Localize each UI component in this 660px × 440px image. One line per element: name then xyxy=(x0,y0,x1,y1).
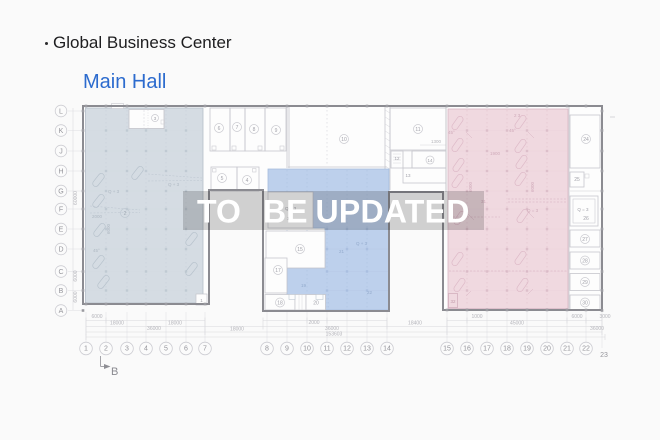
svg-text:TO: TO xyxy=(197,194,241,230)
svg-text:27: 27 xyxy=(582,237,588,243)
svg-text:6000: 6000 xyxy=(106,223,111,234)
svg-text:19: 19 xyxy=(301,283,307,288)
svg-text:2000: 2000 xyxy=(92,214,103,219)
svg-text:Q = 3: Q = 3 xyxy=(527,208,539,213)
svg-text:45°: 45° xyxy=(93,248,100,253)
svg-text:36000: 36000 xyxy=(590,326,604,332)
svg-text:5: 5 xyxy=(164,346,168,353)
svg-text:17: 17 xyxy=(483,346,491,353)
svg-text:2 3: 2 3 xyxy=(514,113,521,118)
svg-text:B: B xyxy=(59,288,64,295)
svg-text:Q = 3: Q = 3 xyxy=(577,207,589,212)
svg-text:Q + 3: Q + 3 xyxy=(168,182,180,187)
svg-text:45000: 45000 xyxy=(510,321,524,327)
svg-text:8: 8 xyxy=(253,127,256,133)
svg-text:28: 28 xyxy=(582,259,588,265)
svg-text:19: 19 xyxy=(523,346,531,353)
svg-text:Q + 3: Q + 3 xyxy=(356,241,368,246)
svg-text:11: 11 xyxy=(415,127,420,133)
svg-text:20: 20 xyxy=(543,346,551,353)
svg-text:E: E xyxy=(59,227,64,234)
svg-text:18: 18 xyxy=(503,346,511,353)
svg-text:8: 8 xyxy=(265,346,269,353)
svg-text:F: F xyxy=(59,207,63,214)
svg-text:22: 22 xyxy=(582,346,590,353)
svg-text:18: 18 xyxy=(277,301,283,307)
svg-text:2: 2 xyxy=(104,346,108,353)
svg-text:J: J xyxy=(59,149,63,156)
svg-text:9: 9 xyxy=(285,346,289,353)
svg-text:B: B xyxy=(111,366,118,378)
svg-text:22: 22 xyxy=(367,290,373,295)
svg-text:7: 7 xyxy=(236,125,239,131)
svg-text:UPDATED: UPDATED xyxy=(316,194,470,230)
svg-text:H: H xyxy=(58,169,63,176)
svg-text:5: 5 xyxy=(221,176,224,182)
svg-text:6000: 6000 xyxy=(571,314,582,320)
svg-text:14: 14 xyxy=(383,346,391,353)
svg-text:D: D xyxy=(58,247,63,254)
svg-text:C: C xyxy=(58,269,63,276)
svg-text:60000: 60000 xyxy=(73,191,79,205)
svg-text:12: 12 xyxy=(343,346,351,353)
svg-text:18400: 18400 xyxy=(408,321,422,327)
svg-text:23: 23 xyxy=(600,352,608,359)
svg-text:12: 12 xyxy=(394,156,400,161)
svg-text:21: 21 xyxy=(563,346,571,353)
svg-text:1300: 1300 xyxy=(431,139,442,144)
svg-text:3000: 3000 xyxy=(599,314,610,320)
svg-text:6: 6 xyxy=(218,126,221,132)
svg-text:45°: 45° xyxy=(448,130,455,135)
svg-text:26: 26 xyxy=(583,216,589,222)
svg-text:21: 21 xyxy=(339,249,345,254)
svg-text:6000: 6000 xyxy=(530,181,535,192)
svg-text:18000: 18000 xyxy=(230,327,244,333)
svg-text:18000: 18000 xyxy=(168,321,182,327)
svg-text:15: 15 xyxy=(443,346,451,353)
svg-text:20: 20 xyxy=(313,301,319,307)
svg-text:6000: 6000 xyxy=(91,314,102,320)
svg-text:17: 17 xyxy=(275,268,281,274)
svg-text:Q + 3: Q + 3 xyxy=(108,189,120,194)
svg-text:16: 16 xyxy=(463,346,471,353)
svg-text:45°: 45° xyxy=(509,128,516,133)
svg-text:1000: 1000 xyxy=(471,314,482,320)
svg-text:29: 29 xyxy=(582,280,588,286)
svg-text:6000: 6000 xyxy=(73,291,79,302)
svg-text:6000: 6000 xyxy=(73,270,79,281)
svg-text:G: G xyxy=(58,189,63,196)
svg-text:1900: 1900 xyxy=(490,151,501,156)
svg-text:13: 13 xyxy=(363,346,371,353)
svg-text:10: 10 xyxy=(341,137,347,143)
svg-text:9: 9 xyxy=(275,128,278,134)
svg-text:18000: 18000 xyxy=(110,321,124,327)
svg-text:K: K xyxy=(59,128,64,135)
svg-text:2: 2 xyxy=(124,211,127,217)
svg-text:3: 3 xyxy=(125,346,129,353)
svg-text:4: 4 xyxy=(246,178,249,184)
svg-text:7: 7 xyxy=(203,346,207,353)
svg-text:A: A xyxy=(59,308,64,315)
svg-text:6000: 6000 xyxy=(468,181,473,192)
svg-text:6: 6 xyxy=(184,346,188,353)
svg-text:4: 4 xyxy=(144,346,148,353)
svg-text:13: 13 xyxy=(405,173,411,178)
svg-text:32: 32 xyxy=(450,299,456,304)
svg-text:24: 24 xyxy=(583,137,589,143)
svg-text:15: 15 xyxy=(297,247,303,253)
svg-text:30: 30 xyxy=(582,301,588,307)
svg-text:BE: BE xyxy=(263,194,307,230)
svg-text:2000: 2000 xyxy=(308,320,319,326)
svg-text:153603: 153603 xyxy=(326,332,343,338)
svg-text:25: 25 xyxy=(574,177,580,183)
svg-text:11: 11 xyxy=(323,346,330,353)
svg-text:L: L xyxy=(59,109,63,116)
svg-text:1: 1 xyxy=(84,346,88,353)
svg-text:14: 14 xyxy=(427,158,433,163)
svg-text:10: 10 xyxy=(303,346,311,353)
svg-text:36000: 36000 xyxy=(147,326,161,332)
